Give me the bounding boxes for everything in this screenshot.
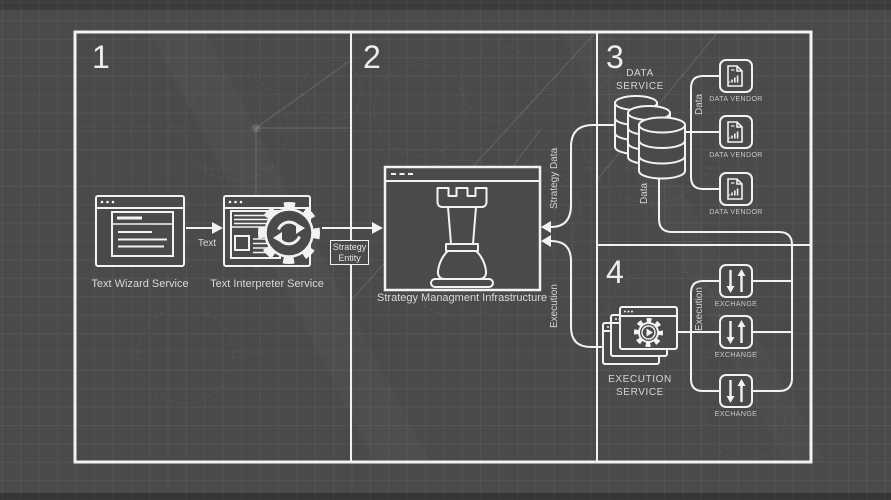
data-service-label: DATA SERVICE xyxy=(590,68,690,93)
strategy-entity-box: Strategy Entity xyxy=(330,240,369,265)
text-edge-label: Text xyxy=(190,238,224,251)
diagram-line-art xyxy=(0,0,891,500)
panel-2-number: 2 xyxy=(363,41,381,73)
data-vendor-icons xyxy=(720,60,752,205)
bottom-dark-strip xyxy=(0,493,891,500)
execution-service-label: EXECUTION SERVICE xyxy=(585,374,695,399)
execution-in-edge-label: Execution xyxy=(549,258,564,354)
data-vendor-label: DATA VENDOR xyxy=(706,96,766,105)
exchange-label: EXCHANGE xyxy=(706,352,766,361)
text-wizard-label: Text Wizard Service xyxy=(75,278,205,292)
data-vendor-label: DATA VENDOR xyxy=(706,209,766,218)
data-vendor-edge-label: Data xyxy=(694,84,709,124)
exchange-label: EXCHANGE xyxy=(706,411,766,420)
text-wizard-window-icon xyxy=(96,196,184,266)
data-out-edge-label: Data xyxy=(639,166,654,220)
strategy-data-edge-label: Strategy Data xyxy=(549,130,564,226)
top-dark-strip xyxy=(0,0,891,10)
blueprint-diagram: 1 2 3 4 Text Wizard Service Text Interpr… xyxy=(0,0,891,500)
data-vendor-label: DATA VENDOR xyxy=(706,152,766,161)
sync-gear-icon xyxy=(262,206,316,260)
text-interpreter-label: Text Interpreter Service xyxy=(202,278,332,292)
execution-out-edge-label: Execution xyxy=(694,283,709,335)
gear-play-icon xyxy=(637,321,661,345)
exchange-icons xyxy=(720,265,752,407)
strategy-management-label: Strategy Managment Infrastructure xyxy=(362,292,562,306)
panel-1-number: 1 xyxy=(92,41,110,73)
panel-4-number: 4 xyxy=(606,256,624,288)
exchange-label: EXCHANGE xyxy=(706,301,766,310)
